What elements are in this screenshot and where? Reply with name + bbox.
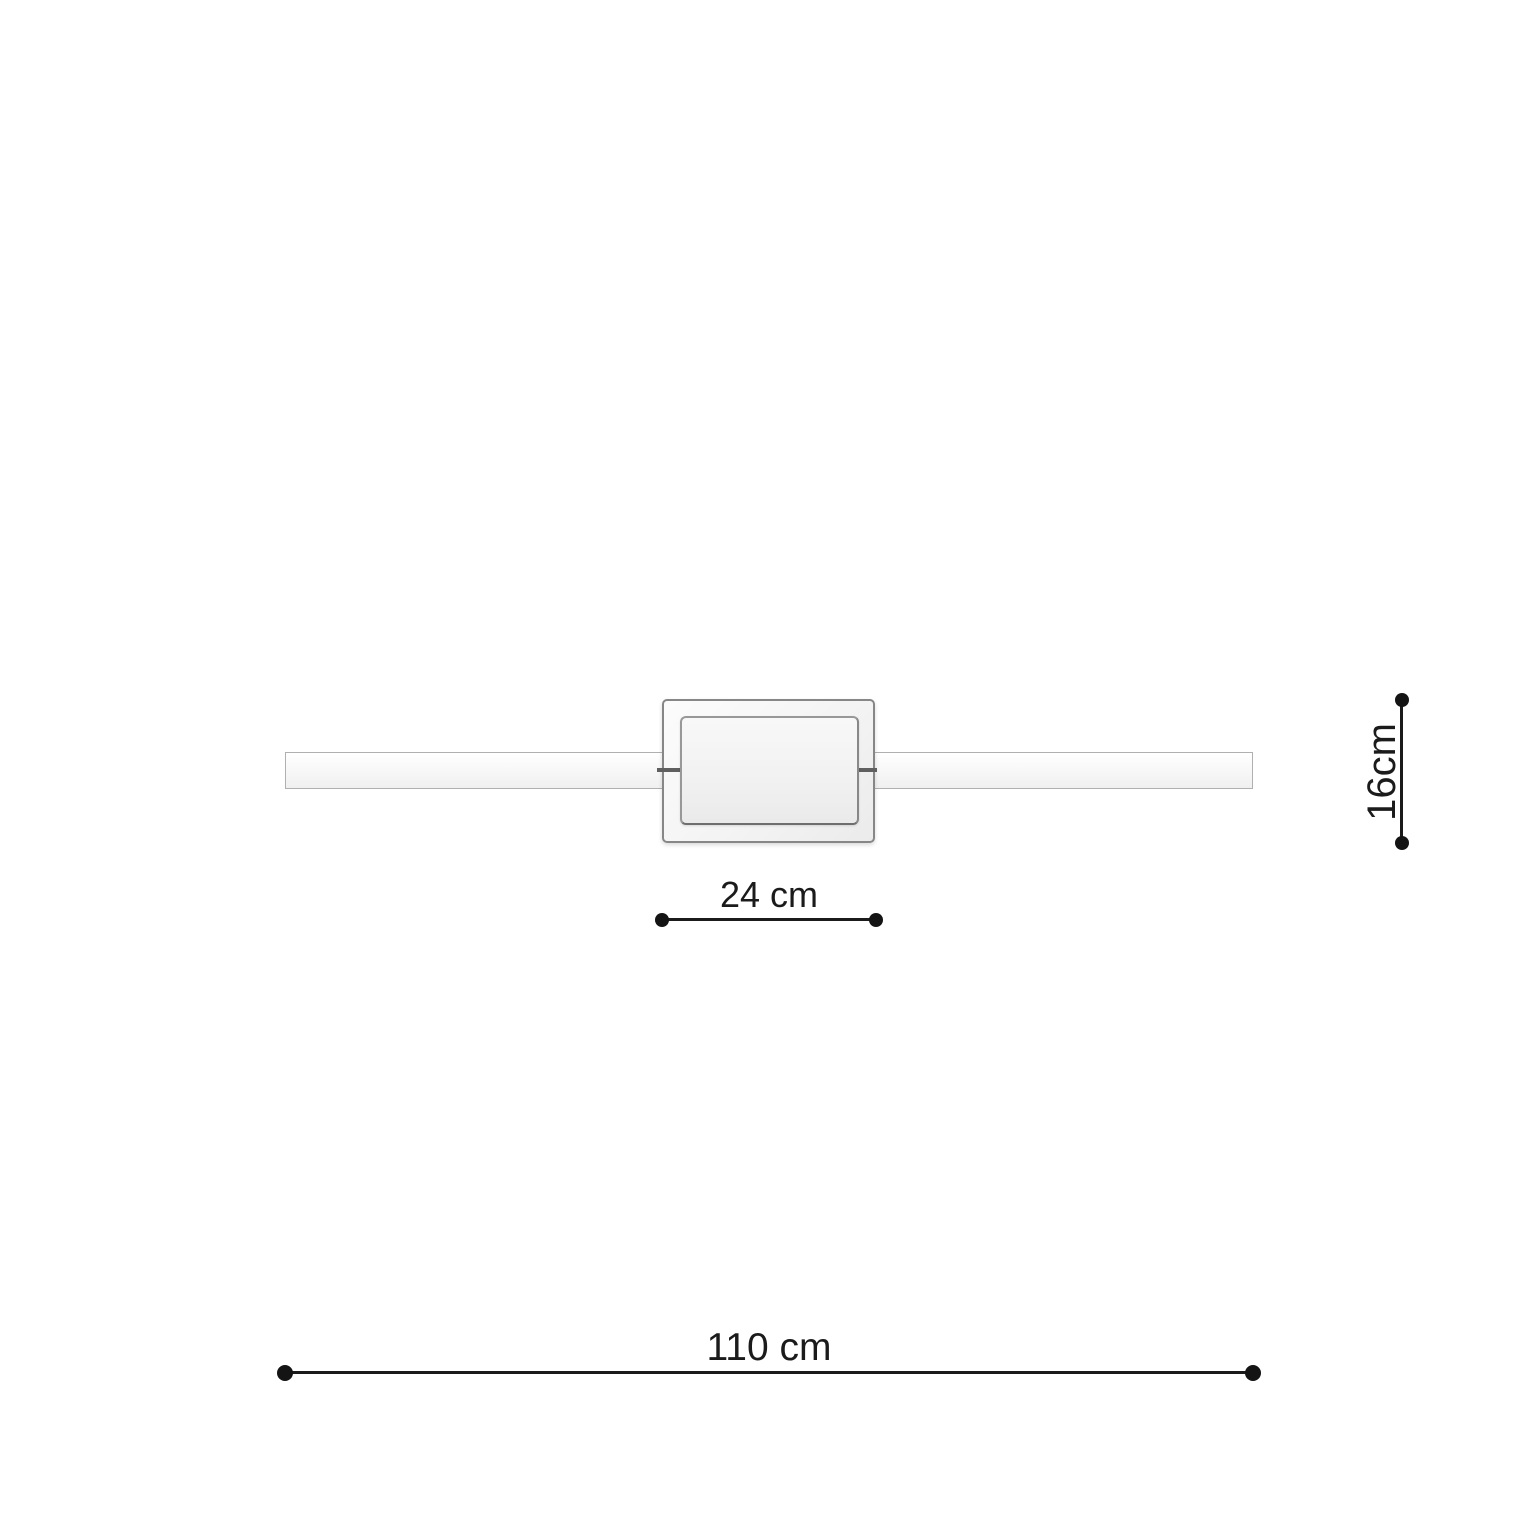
total-width-dimension-line [285,1371,1253,1374]
total-width-dimension-label: 110 cm [619,1326,919,1370]
plate-height-dimension-label: 16cm [1360,692,1404,852]
dimension-endpoint-dot [869,913,883,927]
plate-width-dimension-label: 24 cm [619,874,919,916]
shade-panel [680,716,859,825]
dimension-endpoint-dot [1395,693,1409,707]
lamp-dimension-diagram: 24 cm 16cm 110 cm [0,0,1540,1540]
dimension-endpoint-dot [1395,836,1409,850]
plate-width-dimension-line [662,918,876,921]
dimension-endpoint-dot [277,1365,293,1381]
dimension-endpoint-dot [655,913,669,927]
dimension-endpoint-dot [1245,1365,1261,1381]
